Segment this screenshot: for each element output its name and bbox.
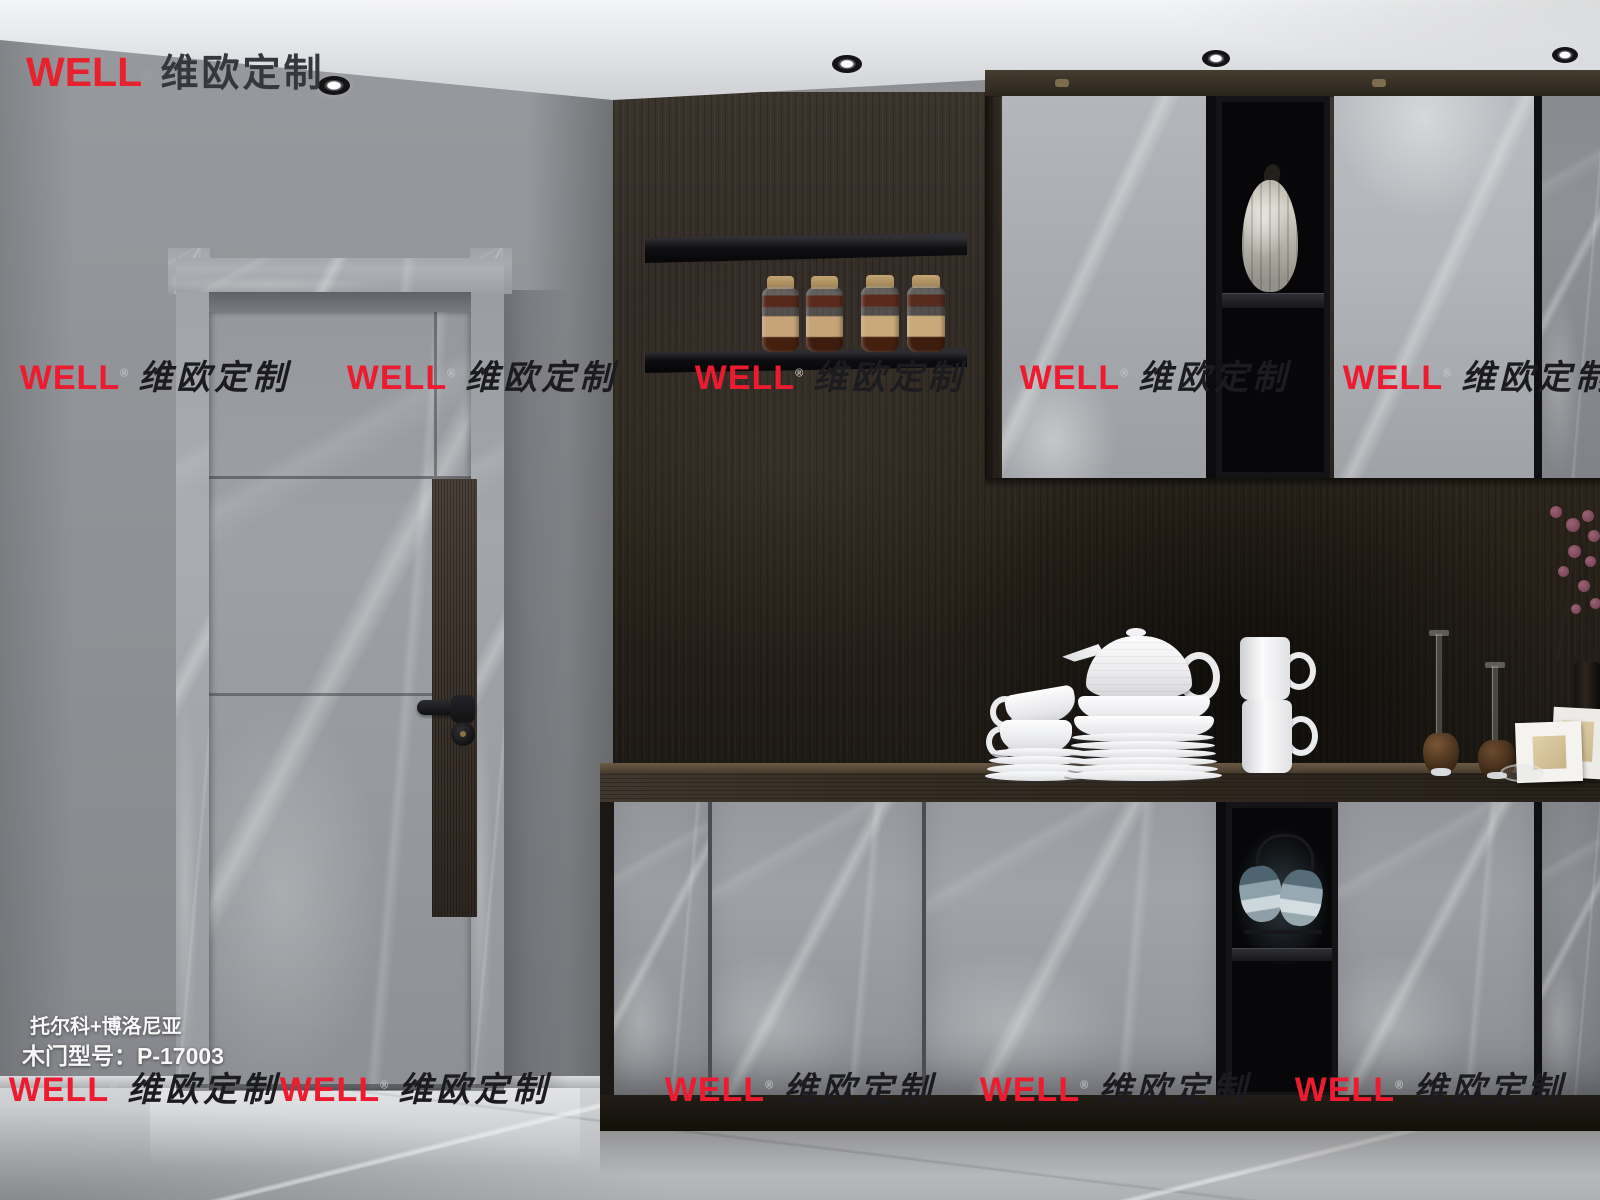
floor-reflection-cabinets <box>600 1131 1600 1176</box>
door-shadow <box>504 290 568 1088</box>
showroom-rendering: WELL®维欧定制 WELL®维欧定制 WELL®维欧定制 WELL®维欧定制 … <box>0 0 1600 1200</box>
storage-jar <box>861 275 899 352</box>
mug <box>1240 637 1290 700</box>
flower-blossom <box>1550 506 1562 518</box>
brand-tagline: 慕致生活 | 奢华品质 <box>78 88 278 108</box>
flower-blossom <box>1578 580 1590 592</box>
flower-blossom <box>1582 510 1594 522</box>
lower-display-niche <box>1226 802 1338 1098</box>
photo <box>1532 735 1566 769</box>
watermark: WELL®维欧定制 <box>1020 350 1290 399</box>
product-series: 托尔科+博洛尼亚 <box>30 1010 182 1039</box>
upper-cabinet-door <box>1542 96 1600 478</box>
display-vase <box>1242 180 1298 292</box>
flower-blossom <box>1568 545 1581 558</box>
cabinet-soffit <box>985 70 1600 97</box>
upper-cabinet-frame <box>1206 96 1216 478</box>
lower-cabinet-frame <box>1216 802 1226 1098</box>
storage-jar <box>907 275 945 352</box>
lower-cabinet-door <box>614 802 708 1098</box>
upper-cabinet-bottom-shadow <box>985 478 1600 488</box>
candlestick-foot <box>1431 768 1451 776</box>
lower-cabinet-door <box>926 802 1216 1098</box>
ceiling-spotlight-icon <box>1202 50 1230 67</box>
jar-body <box>762 287 799 352</box>
storage-jar <box>806 276 843 352</box>
watermark: WELL®维欧定制 <box>665 1062 935 1111</box>
watermark: WELL®维欧定制 <box>280 1062 550 1111</box>
upper-cabinet-seam <box>1534 96 1542 478</box>
candlestick-rim <box>1485 662 1505 668</box>
flower-blossom <box>1590 598 1600 609</box>
soffit-hinge-icon <box>1055 79 1069 87</box>
niche-shelf-divider <box>1232 948 1332 961</box>
flower-blossom <box>1588 530 1600 542</box>
upper-cabinet-side-shadow <box>985 96 1003 478</box>
flower-blossom <box>1585 556 1596 567</box>
flower-blossom <box>1566 518 1580 532</box>
watermark: WELL®维欧定制 <box>1343 350 1600 399</box>
upper-display-niche <box>1216 96 1330 478</box>
soffit-hinge-icon <box>1372 79 1386 87</box>
storage-jar <box>762 276 799 352</box>
mug <box>1242 700 1292 773</box>
door-frame-left <box>176 292 209 1088</box>
lower-cabinet-side <box>600 802 614 1098</box>
ceiling-spotlight-icon <box>832 55 862 73</box>
lower-cabinet-seam <box>1534 802 1542 1098</box>
door-jamb-reveal <box>209 292 471 312</box>
door-lock-keyhole <box>460 731 466 737</box>
candlestick-stem <box>1436 634 1442 736</box>
watermark: WELL®维欧定制 <box>695 350 965 399</box>
mug-rack-base <box>1244 930 1322 934</box>
lower-cabinet-door <box>712 802 922 1098</box>
flower-blossom <box>1571 604 1581 614</box>
door-frame-top <box>176 258 504 294</box>
jar-body <box>861 286 899 352</box>
candlestick-rim <box>1429 630 1449 636</box>
watermark: WELL®维欧定制 <box>20 350 290 399</box>
lower-cabinet-door <box>1338 802 1534 1098</box>
door-handle-rosette <box>451 695 475 723</box>
candlestick-stem <box>1492 666 1498 744</box>
watermark: WELL®维欧定制 <box>347 350 617 399</box>
upper-cabinet-door <box>1002 96 1206 478</box>
lower-cabinet-door <box>1542 802 1600 1098</box>
registered-mark-icon: ® <box>142 67 152 83</box>
charger-plate <box>1064 770 1222 781</box>
jar-body <box>806 287 843 352</box>
watermark: WELL®维欧定制 <box>1295 1062 1565 1111</box>
ceiling-spotlight-icon <box>1552 47 1578 63</box>
candlestick-urn <box>1423 733 1459 771</box>
watermark: WELL®维欧定制 <box>980 1062 1250 1111</box>
product-model: 木门型号：P-17003 <box>22 1037 224 1071</box>
niche-shelf-divider <box>1222 293 1324 308</box>
glass-dish <box>1500 764 1544 782</box>
jar-body <box>907 286 945 352</box>
upper-cabinet-door <box>1334 96 1534 478</box>
flower-blossom <box>1558 566 1569 577</box>
